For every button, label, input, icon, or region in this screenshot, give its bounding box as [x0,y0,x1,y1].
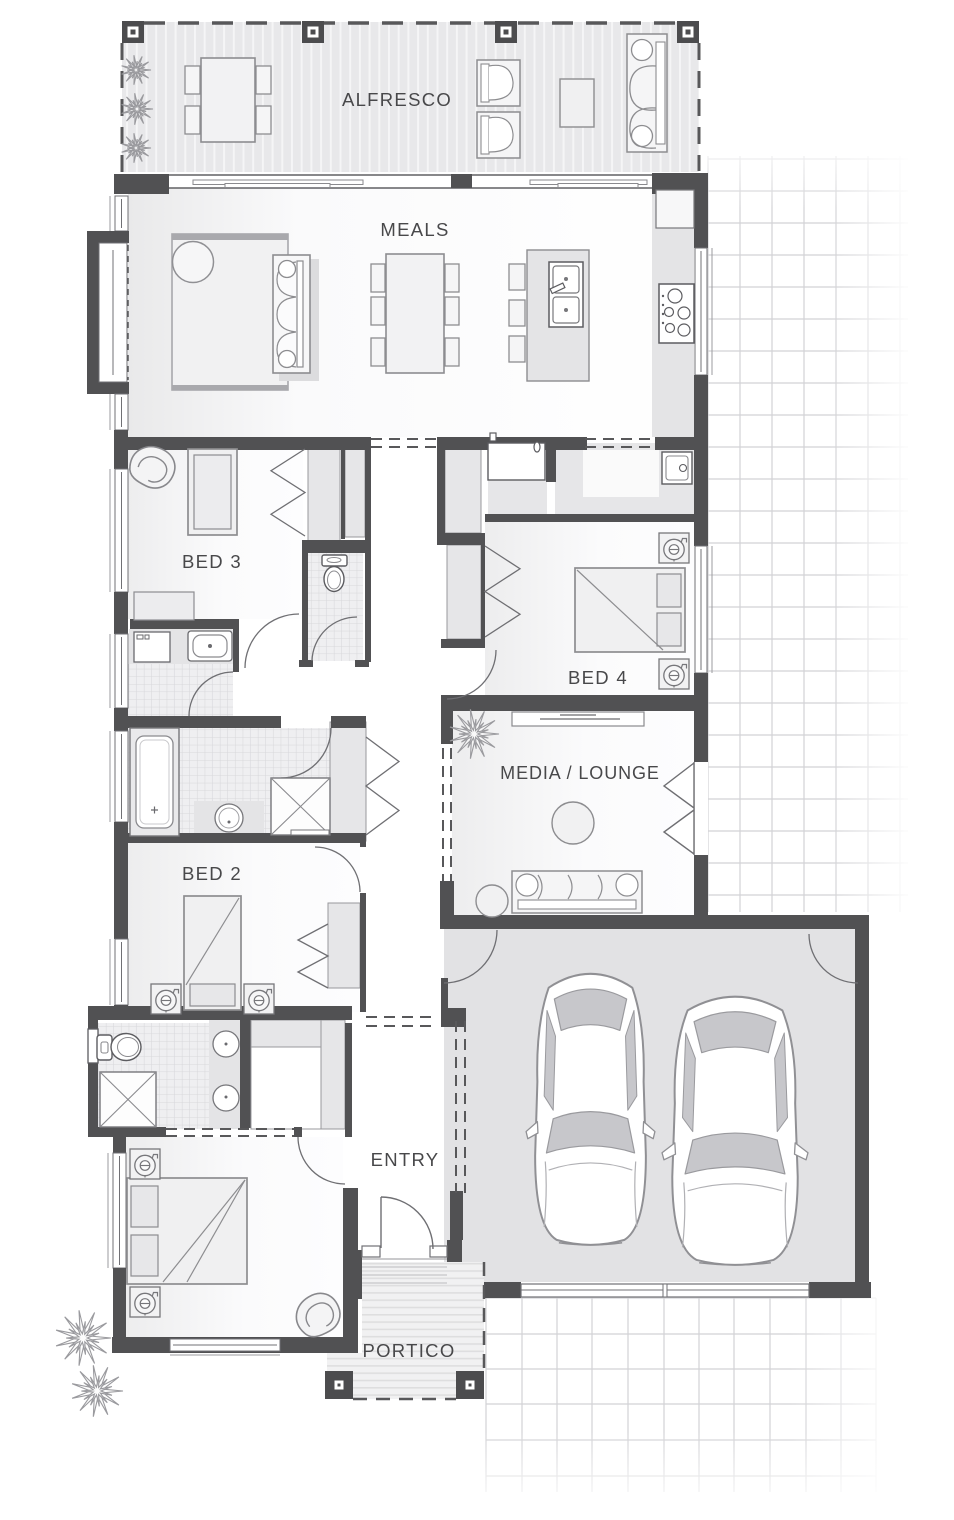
svg-text:BED 2: BED 2 [182,863,242,884]
svg-text:MEALS: MEALS [380,219,449,240]
svg-text:ALFRESCO: ALFRESCO [342,89,452,110]
svg-text:BED 3: BED 3 [182,551,242,572]
svg-text:PORTICO: PORTICO [362,1340,455,1361]
svg-text:ENTRY: ENTRY [371,1149,440,1170]
svg-text:MEDIA / LOUNGE: MEDIA / LOUNGE [500,763,660,783]
svg-text:BED 4: BED 4 [568,667,628,688]
